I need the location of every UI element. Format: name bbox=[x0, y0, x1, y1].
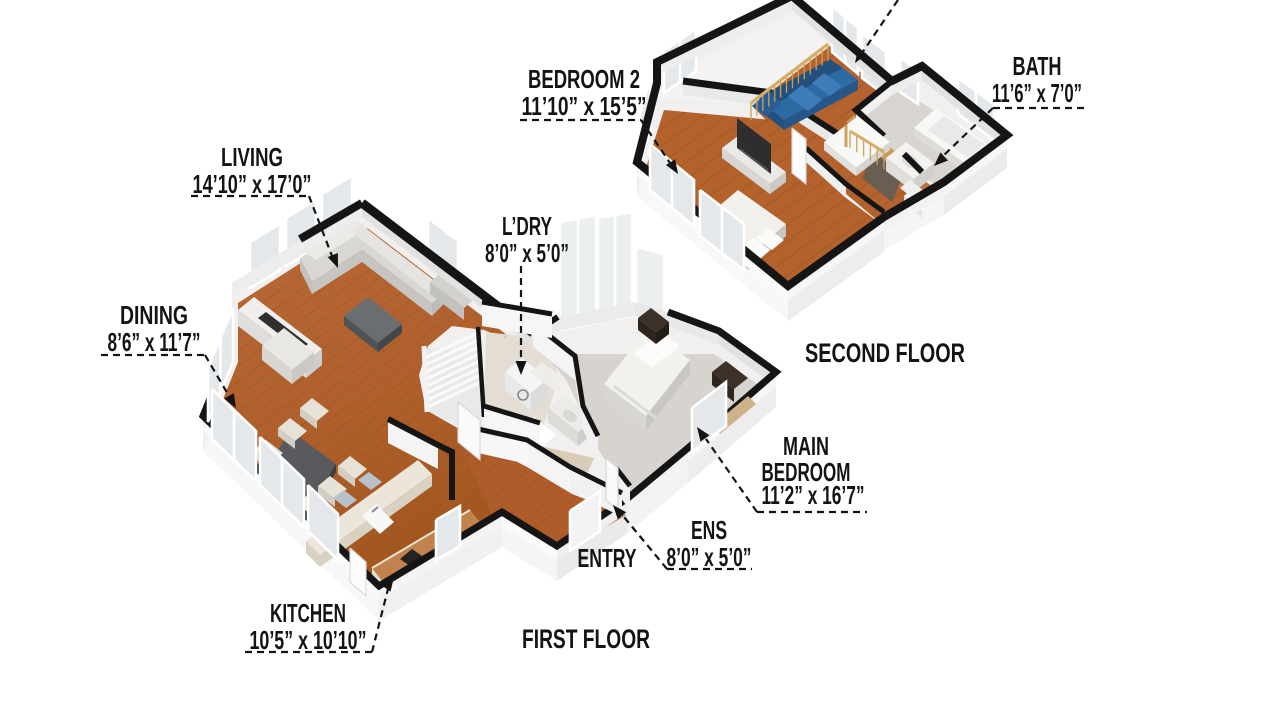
svg-text:11’2” x 16’7”: 11’2” x 16’7” bbox=[762, 480, 865, 510]
svg-text:KITCHEN: KITCHEN bbox=[270, 598, 346, 628]
svg-text:8’0” x 5’0”: 8’0” x 5’0” bbox=[667, 542, 752, 572]
svg-text:10’5” x 10’10”: 10’5” x 10’10” bbox=[250, 625, 367, 655]
svg-text:11’10” x 15’5”: 11’10” x 15’5” bbox=[522, 91, 647, 121]
svg-text:ENS: ENS bbox=[691, 515, 727, 545]
svg-text:11’6” x 7’0”: 11’6” x 7’0” bbox=[992, 78, 1082, 108]
svg-text:LIVING: LIVING bbox=[221, 142, 283, 172]
svg-text:8’0” x 5’0”: 8’0” x 5’0” bbox=[485, 238, 569, 268]
svg-text:8’6” x 11’7”: 8’6” x 11’7” bbox=[108, 327, 201, 357]
svg-text:L’DRY: L’DRY bbox=[502, 211, 552, 241]
svg-text:FIRST FLOOR: FIRST FLOOR bbox=[522, 624, 650, 654]
svg-text:DINING: DINING bbox=[120, 300, 188, 330]
svg-text:SECOND FLOOR: SECOND FLOOR bbox=[805, 338, 965, 368]
svg-text:14’10” x 17’0”: 14’10” x 17’0” bbox=[193, 169, 312, 199]
svg-text:BATH: BATH bbox=[1013, 51, 1062, 81]
svg-text:BEDROOM 2: BEDROOM 2 bbox=[528, 64, 640, 94]
svg-text:ENTRY: ENTRY bbox=[578, 543, 637, 573]
